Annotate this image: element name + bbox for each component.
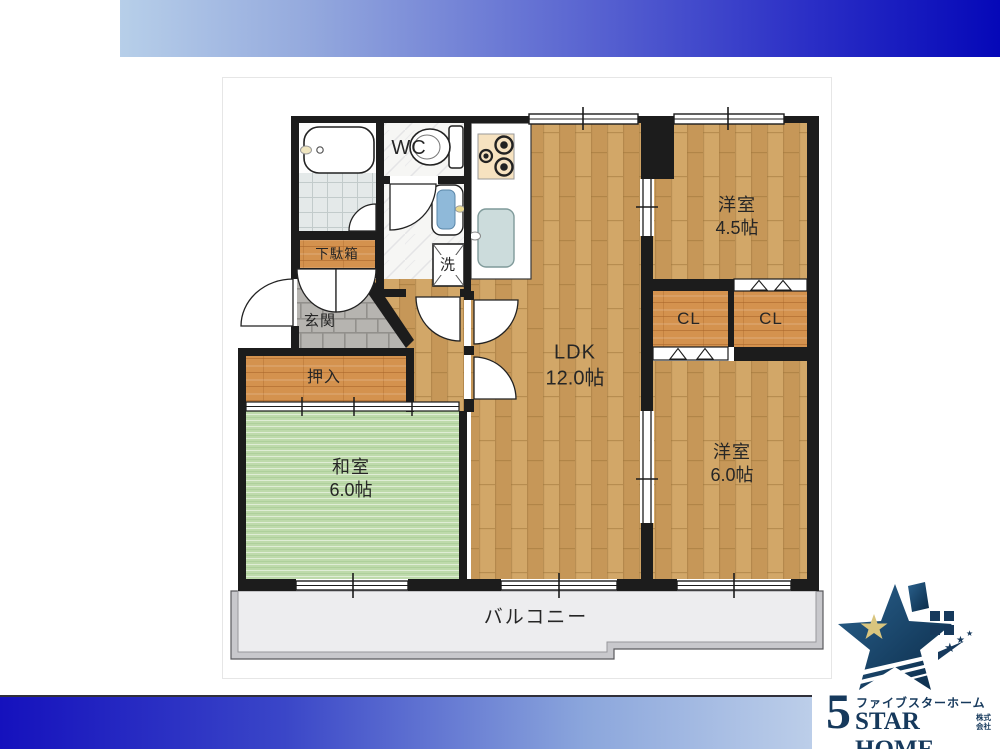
svg-text:★: ★ <box>944 641 956 656</box>
closet-right-label: CL <box>759 308 783 330</box>
star-home-emblem: ★ ★ ★ <box>838 580 980 692</box>
oshiire-label: 押入 <box>307 368 341 388</box>
shoe-cabinet-label: 下駄箱 <box>315 245 359 262</box>
kitchen-sink <box>478 209 514 267</box>
flyer-page: WC 洗 下駄箱 玄関 押入 和室 6.0帖 LDK 12.0帖 CL CL 洋… <box>0 0 1000 749</box>
chimney <box>908 582 929 612</box>
bathtub <box>301 127 375 173</box>
western-room-large-label: 洋室 6.0帖 <box>710 441 753 487</box>
floorplan: WC 洗 下駄箱 玄関 押入 和室 6.0帖 LDK 12.0帖 CL CL 洋… <box>222 77 832 679</box>
western-room-small-label: 洋室 4.5帖 <box>715 194 758 240</box>
laundry-label: 洗 <box>439 255 457 274</box>
logo-corp: 株式 会社 <box>976 714 991 731</box>
ldk-label: LDK 12.0帖 <box>546 340 605 391</box>
logo-five: 5 <box>826 686 851 736</box>
company-logo: ★ ★ ★ 5 ファイブスターホーム STAR HOME 株式 会社 <box>824 580 1000 748</box>
japanese-room-label: 和室 6.0帖 <box>329 456 372 502</box>
wc-label: WC <box>391 136 426 162</box>
entrance-label: 玄関 <box>304 311 336 330</box>
closet-left-label: CL <box>677 308 701 330</box>
top-gradient-banner <box>120 0 1000 57</box>
entrance-door-arc <box>241 279 293 326</box>
svg-text:★: ★ <box>966 629 973 638</box>
balcony-label: バルコニー <box>484 606 589 630</box>
kitchen-counter <box>470 123 532 279</box>
svg-text:★: ★ <box>956 635 965 646</box>
wash-basin <box>432 185 465 235</box>
bottom-gradient-banner <box>0 695 812 749</box>
logo-text: 5 ファイブスターホーム STAR HOME 株式 会社 <box>824 692 1000 744</box>
